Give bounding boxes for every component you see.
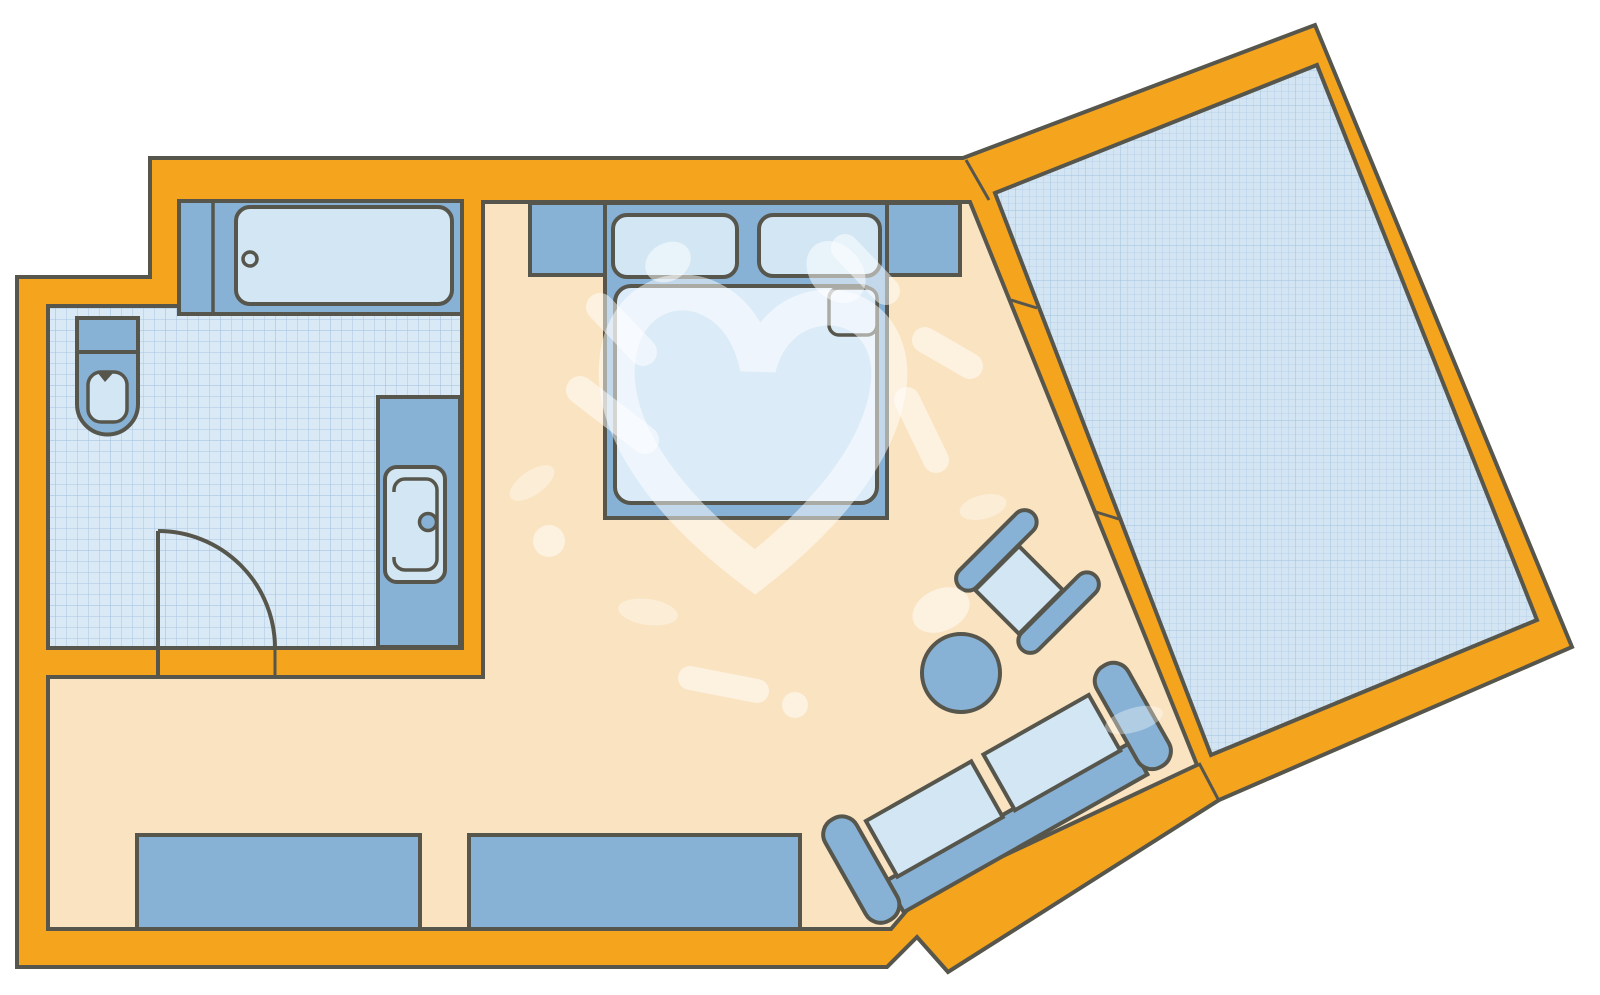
basin-drain-icon xyxy=(420,514,437,531)
plan-root xyxy=(17,25,1572,972)
bathtub-drain-icon xyxy=(243,252,257,266)
round-table xyxy=(922,634,1000,712)
sideboard-left xyxy=(137,835,420,929)
toilet-seat xyxy=(88,372,127,422)
sideboard-right xyxy=(469,835,800,929)
floor-plan-canvas xyxy=(0,0,1600,995)
bathtub xyxy=(236,207,452,304)
bathtub-area xyxy=(179,201,462,314)
floor-plan xyxy=(0,0,1600,995)
toilet-tank xyxy=(77,318,138,354)
toilet xyxy=(77,318,138,434)
washbasin-vanity xyxy=(378,397,460,647)
